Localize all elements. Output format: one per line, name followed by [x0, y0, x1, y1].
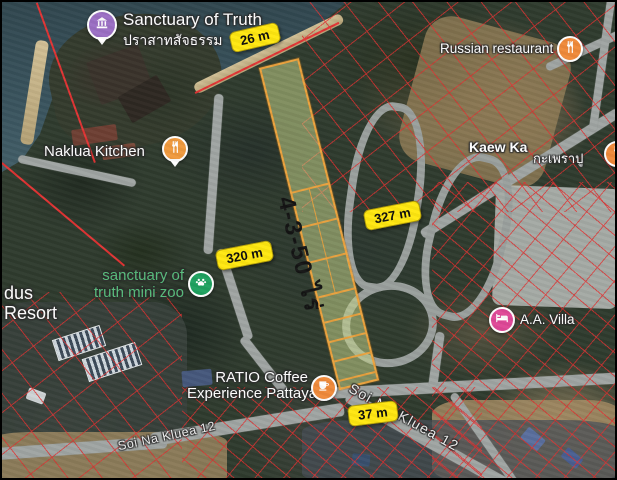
sanctuary-of-truth-pin[interactable]: [87, 10, 117, 40]
restaurant-icon: [168, 140, 182, 159]
poi-label-line1: dus: [4, 283, 57, 303]
poi-label-russian-restaurant[interactable]: Russian restaurant: [440, 41, 553, 56]
poi-label-kaew-ka-thai[interactable]: กะเพราปู: [533, 148, 583, 169]
coffee-icon: [317, 379, 331, 398]
naklua-kitchen-pin[interactable]: [162, 136, 188, 162]
poi-label-line1: sanctuary of: [62, 267, 184, 284]
ratio-coffee-pin[interactable]: [311, 375, 337, 401]
paw-icon: [194, 275, 208, 294]
restaurant-icon: [563, 40, 577, 59]
lodging-icon: [495, 311, 509, 330]
poi-label-line2: Resort: [4, 303, 57, 323]
poi-label-line1: RATIO Coffee: [187, 370, 308, 386]
poi-label-line2: truth mini zoo: [62, 284, 184, 301]
poi-label-line2: Experience Pattaya: [187, 386, 308, 402]
poi-label-naklua-kitchen[interactable]: Naklua Kitchen: [44, 143, 145, 160]
aa-villa-pin[interactable]: [489, 307, 515, 333]
poi-label-kaew-ka[interactable]: Kaew Ka: [469, 139, 527, 155]
poi-label-aa-villa[interactable]: A.A. Villa: [520, 312, 575, 327]
poi-label-mini-zoo[interactable]: sanctuary of truth mini zoo: [62, 267, 184, 301]
satellite-map[interactable]: 4-3-50 ไร่ Sanctuary of Truth ปราสาทสัจธ…: [0, 0, 617, 480]
poi-label-sanctuary-of-truth-thai[interactable]: ปราสาทสัจธรรม: [123, 30, 222, 52]
russian-restaurant-pin[interactable]: [557, 36, 583, 62]
poi-label-sanctuary-of-truth[interactable]: Sanctuary of Truth: [123, 10, 262, 30]
building-roof: [352, 453, 371, 467]
restaurant-icon: [610, 145, 617, 164]
mini-zoo-pin[interactable]: [188, 271, 214, 297]
poi-label-resort[interactable]: dus Resort: [4, 283, 57, 323]
poi-label-ratio-coffee[interactable]: RATIO Coffee Experience Pattaya: [187, 370, 308, 402]
temple-icon: [95, 16, 109, 35]
